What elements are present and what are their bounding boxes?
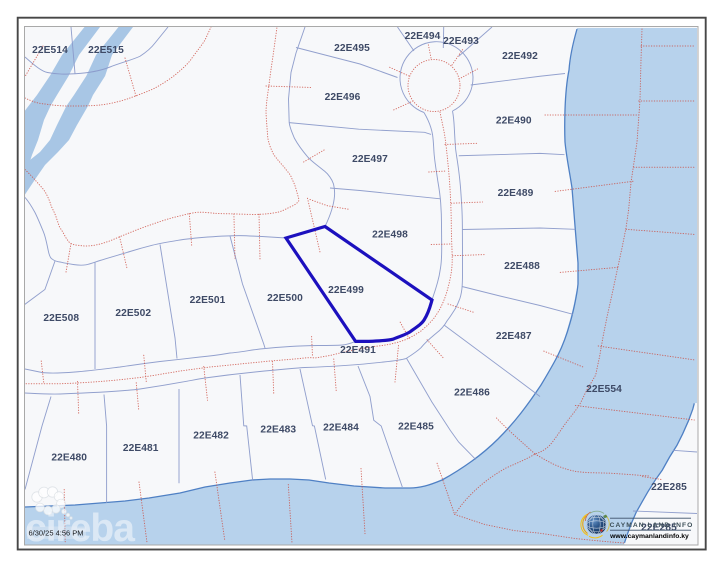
svg-text:22E481: 22E481 [123, 443, 159, 454]
svg-text:22E502: 22E502 [115, 308, 151, 319]
svg-text:22E482: 22E482 [193, 431, 229, 442]
svg-text:22E490: 22E490 [496, 116, 532, 127]
svg-text:www.caymanlandinfo.ky: www.caymanlandinfo.ky [609, 533, 689, 540]
svg-text:22E508: 22E508 [43, 313, 79, 324]
svg-text:6/30/25 4:56 PM: 6/30/25 4:56 PM [29, 528, 84, 537]
svg-text:22E515: 22E515 [88, 45, 124, 56]
svg-text:22E498: 22E498 [372, 230, 408, 241]
svg-text:22E487: 22E487 [496, 331, 532, 342]
svg-text:22E497: 22E497 [352, 154, 388, 165]
svg-text:22E493: 22E493 [443, 36, 479, 47]
svg-text:22E489: 22E489 [498, 188, 534, 199]
svg-text:22E483: 22E483 [260, 425, 296, 436]
svg-text:22E514: 22E514 [32, 45, 68, 56]
svg-text:22E495: 22E495 [334, 43, 370, 54]
svg-text:22E285: 22E285 [651, 482, 687, 493]
svg-text:CAYMAN LAND INFO: CAYMAN LAND INFO [610, 522, 694, 529]
svg-text:22E494: 22E494 [405, 31, 441, 42]
svg-text:22E484: 22E484 [323, 423, 359, 434]
svg-text:22E491: 22E491 [340, 345, 376, 356]
svg-text:22E500: 22E500 [267, 293, 303, 304]
svg-text:22E486: 22E486 [454, 388, 490, 399]
svg-text:22E485: 22E485 [398, 422, 434, 433]
svg-text:22E492: 22E492 [502, 51, 538, 62]
svg-text:22E480: 22E480 [51, 452, 87, 463]
svg-text:22E496: 22E496 [325, 92, 361, 103]
svg-text:22E499: 22E499 [328, 285, 364, 296]
svg-text:22E554: 22E554 [586, 384, 622, 395]
svg-text:22E488: 22E488 [504, 261, 540, 272]
svg-text:22E501: 22E501 [190, 295, 226, 306]
